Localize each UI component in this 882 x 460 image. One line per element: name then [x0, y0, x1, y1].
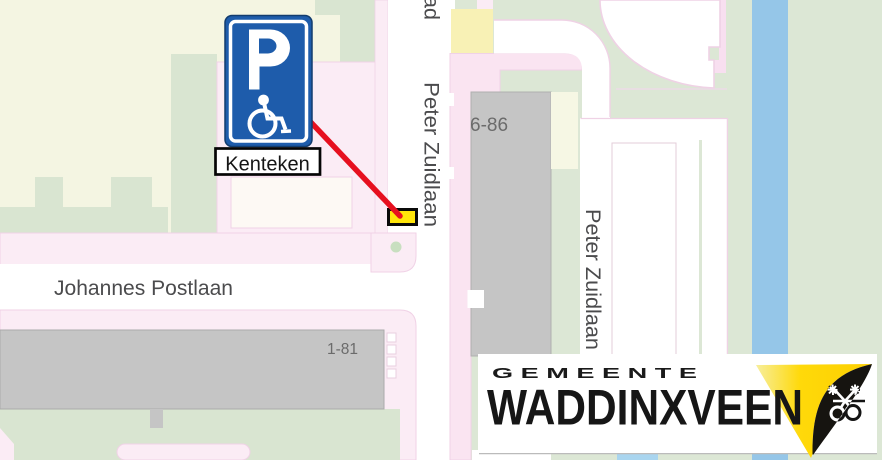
svg-text:Peter Zuidlaan: Peter Zuidlaan — [581, 209, 605, 350]
svg-text:WADDINXVEEN: WADDINXVEEN — [487, 380, 803, 436]
svg-text:6-86: 6-86 — [470, 115, 508, 136]
svg-text:ad: ad — [420, 0, 444, 20]
svg-text:Kenteken: Kenteken — [225, 154, 310, 176]
svg-text:Johannes Postlaan: Johannes Postlaan — [54, 276, 233, 300]
svg-text:1-81: 1-81 — [327, 341, 358, 358]
svg-text:Peter Zuidlaan: Peter Zuidlaan — [420, 82, 444, 227]
